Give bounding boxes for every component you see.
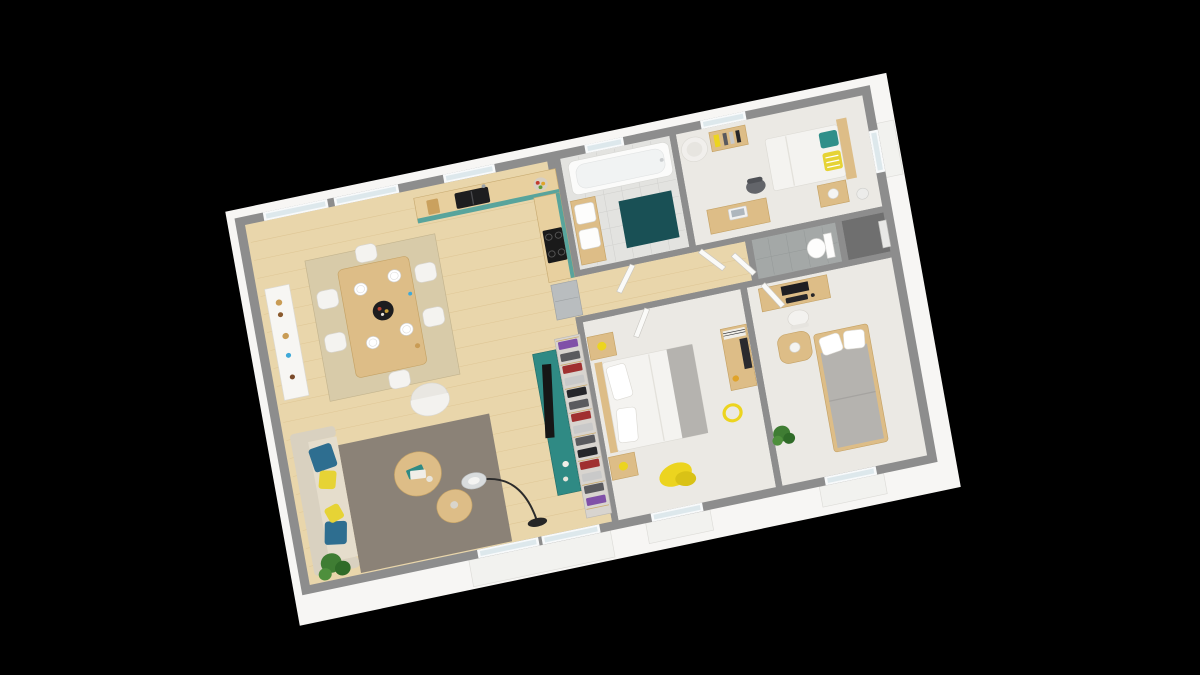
dining-area xyxy=(304,230,460,402)
floor-plan-scene xyxy=(0,0,1200,675)
pillow-yellow xyxy=(318,470,336,489)
pillow xyxy=(616,407,638,444)
sink-basin xyxy=(574,202,597,225)
pillow-blue xyxy=(325,521,347,545)
sink-basin xyxy=(578,227,601,250)
pillow xyxy=(843,329,865,350)
floor-plan-3d-render xyxy=(168,50,981,648)
